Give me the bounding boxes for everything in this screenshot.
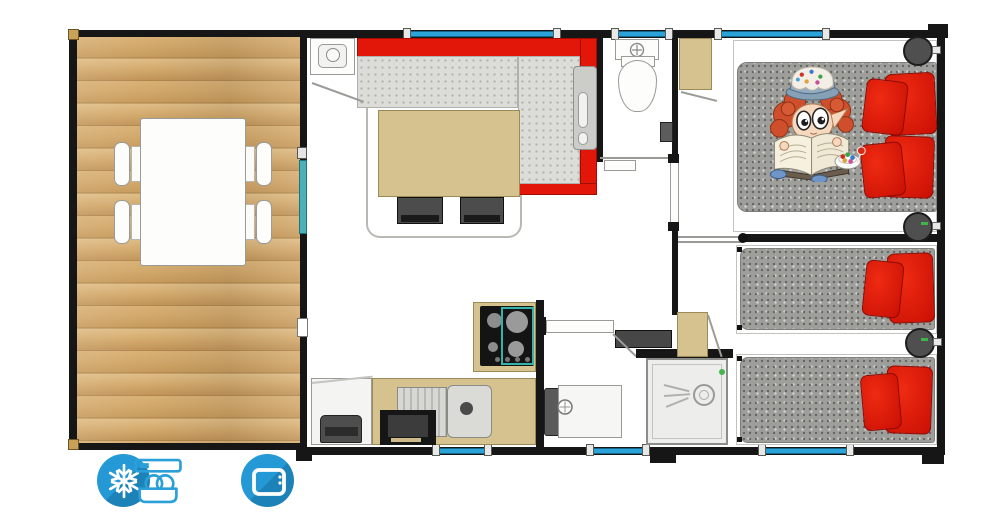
divider-hinge-dot [738,233,748,243]
shower-indicator [719,369,725,375]
dining-table [140,118,246,266]
wc-bin [660,122,673,142]
window-bracket [432,444,440,456]
toilet-bowl [618,60,657,112]
wc-threshold [600,157,676,159]
nightstand [903,212,933,242]
window-bracket [484,444,492,456]
washbasin-tap [556,398,574,416]
nightstand-handle [932,46,941,54]
corner-tab [650,449,676,463]
window [437,448,489,454]
oven-handle [391,438,421,442]
water-heater-dial [326,48,340,62]
chair-back [114,142,130,186]
armrest-detail [578,92,588,128]
stool [397,197,443,224]
corner-tab [928,24,948,38]
window-bracket [822,28,830,40]
chair-back [256,142,272,186]
corner-tab [922,449,944,464]
door-hinge-block [668,222,679,231]
window-bracket [642,444,650,456]
terrace-corner-block [68,29,79,40]
floorplan [0,0,1000,518]
window-bracket [586,444,594,456]
wall-right [937,30,945,455]
wardrobe [679,38,712,90]
bed-leg-dot [737,325,742,330]
hob-burner [487,313,502,328]
door-latch [297,147,307,159]
coffee-table [378,110,520,197]
wc-door [604,160,636,171]
sofa-seat [357,56,518,108]
door-hinge-block [668,154,679,163]
armrest-detail [578,132,588,145]
window-bracket [846,444,854,456]
wardrobe-door-swing [681,91,717,102]
window [763,448,851,454]
sink-drain [460,402,473,415]
tv-icon [241,454,294,507]
nightstand-handle [933,338,942,346]
nightstand-handle [932,222,941,230]
divider-door-line [678,241,742,243]
oven-door [388,415,428,437]
terrace-wall-bottom [69,443,302,450]
dishwasher-icon [133,458,183,505]
nightstand [905,328,935,358]
door-hinge-block [536,317,546,335]
nightstand [903,36,933,66]
chair-back [256,200,272,244]
bathroom-cabinet [677,312,708,357]
divider-door-line [678,236,742,238]
stool [460,197,504,224]
pillow [860,372,903,431]
hob-burner [488,342,498,352]
reading-child-illustration [753,60,875,182]
bed-leg-dot [737,247,742,252]
bed-leg-dot [737,356,742,361]
wc-wall-left [597,38,603,162]
terrace-wall-top [69,30,302,37]
bed-leg-dot [737,437,742,442]
terrace-wall-left [69,30,77,450]
hob-knob [495,357,500,362]
pillow [861,259,905,319]
door-marker [297,318,308,337]
bathroom-door [546,320,614,333]
hob-frame [501,307,534,365]
television-icon [244,457,292,505]
window-bracket [758,444,766,456]
wall-left [300,30,307,455]
corner-tab [296,447,312,461]
window [719,31,827,37]
window [408,31,558,37]
nightstand-indicator [921,222,928,225]
fridge-compressor-band [325,427,358,436]
shower-drain-dot [699,390,709,400]
hall-door [670,162,679,224]
window [591,448,647,454]
sofa-back-cap [518,183,597,195]
sliding-door [299,160,307,234]
window [616,31,670,37]
nightstand-indicator [921,338,928,341]
window-bracket [714,28,722,40]
sofa-seat [518,56,580,184]
chair-back [114,200,130,244]
sofa-back-top [357,38,597,57]
terrace-corner-block [68,439,79,450]
